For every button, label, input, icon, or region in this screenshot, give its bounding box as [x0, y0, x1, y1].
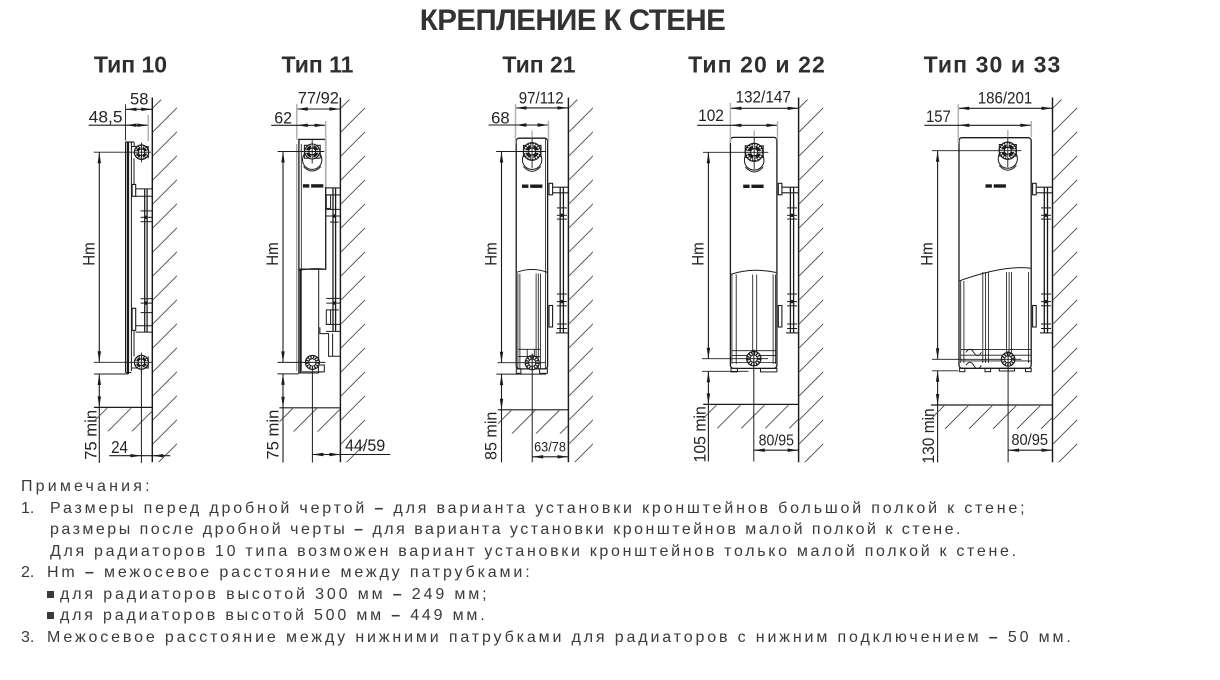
svg-text:Hm: Hm	[263, 242, 282, 266]
svg-text:63/78: 63/78	[534, 440, 566, 455]
svg-text:186/201: 186/201	[978, 89, 1033, 108]
svg-text:Hm: Hm	[79, 242, 98, 266]
svg-text:102: 102	[698, 106, 724, 125]
svg-text:80/95: 80/95	[759, 432, 794, 449]
svg-text:Тип 11: Тип 11	[282, 52, 354, 78]
svg-text:Hm: Hm	[918, 242, 937, 266]
svg-text:77/92: 77/92	[298, 88, 339, 107]
svg-text:132/147: 132/147	[735, 88, 791, 107]
svg-text:58: 58	[130, 89, 148, 108]
svg-text:Hm: Hm	[688, 242, 707, 266]
svg-text:80/95: 80/95	[1011, 432, 1048, 449]
svg-text:97/112: 97/112	[519, 89, 564, 108]
svg-text:75 min: 75 min	[263, 410, 282, 460]
svg-text:85 min: 85 min	[482, 412, 501, 460]
svg-text:Hm: Hm	[482, 242, 501, 266]
svg-text:157: 157	[926, 107, 951, 126]
svg-text:48,5: 48,5	[89, 108, 123, 127]
svg-text:Тип 21: Тип 21	[502, 52, 575, 78]
svg-text:24: 24	[111, 437, 128, 457]
svg-text:130 min: 130 min	[919, 408, 938, 463]
svg-text:44/59: 44/59	[345, 437, 385, 455]
svg-text:Тип 20 и 22: Тип 20 и 22	[688, 52, 826, 78]
svg-text:Тип 30 и 33: Тип 30 и 33	[924, 52, 1062, 78]
svg-text:Тип 10: Тип 10	[94, 52, 167, 78]
